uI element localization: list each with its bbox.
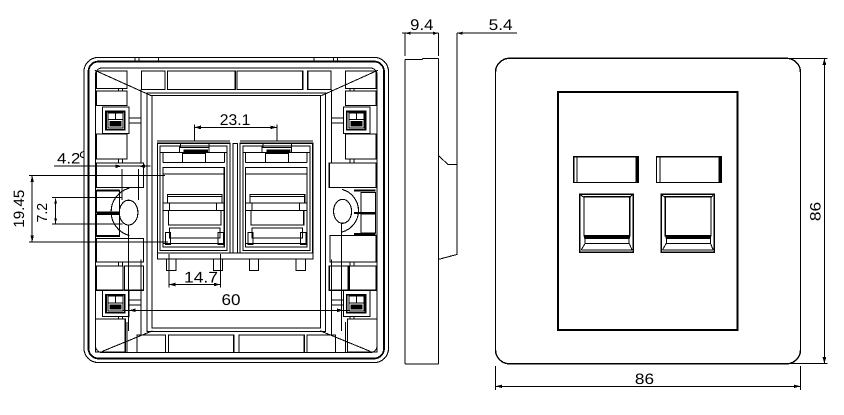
svg-text:9.4: 9.4 xyxy=(410,17,434,34)
svg-text:4.2: 4.2 xyxy=(57,150,80,167)
svg-text:60: 60 xyxy=(222,292,241,309)
svg-text:19.45: 19.45 xyxy=(11,190,28,228)
svg-text:23.1: 23.1 xyxy=(220,112,251,129)
svg-text:14.7: 14.7 xyxy=(184,270,218,287)
svg-text:86: 86 xyxy=(808,202,825,221)
svg-text:7.2: 7.2 xyxy=(35,203,51,223)
svg-text:86: 86 xyxy=(635,371,654,388)
svg-text:5.4: 5.4 xyxy=(489,17,513,34)
